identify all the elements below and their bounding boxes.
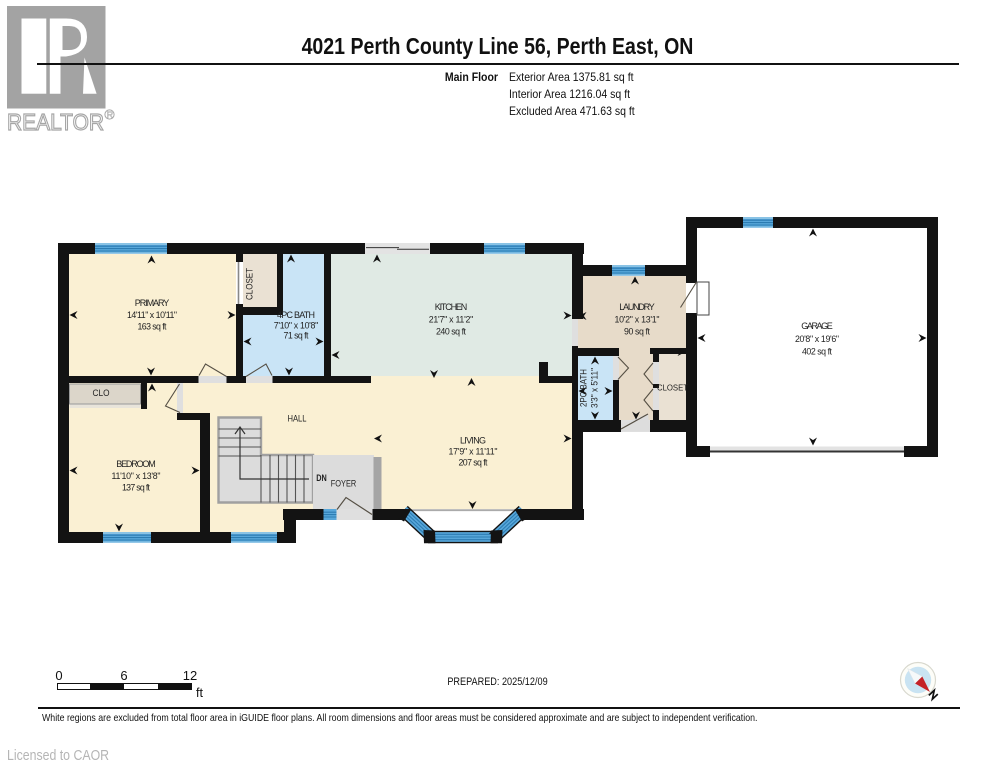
svg-text:17'9" x 11'11": 17'9" x 11'11" xyxy=(449,447,498,457)
svg-text:402 sq ft: 402 sq ft xyxy=(802,347,833,357)
svg-text:4PC BATH: 4PC BATH xyxy=(277,310,315,320)
svg-text:DN: DN xyxy=(316,473,327,483)
svg-text:11'10" x 13'8": 11'10" x 13'8" xyxy=(112,471,161,481)
svg-text:90 sq ft: 90 sq ft xyxy=(624,327,651,337)
svg-text:FOYER: FOYER xyxy=(331,479,357,489)
svg-text:71 sq ft: 71 sq ft xyxy=(284,331,310,341)
svg-text:207 sq ft: 207 sq ft xyxy=(459,458,489,468)
svg-text:GARAGE: GARAGE xyxy=(801,321,833,331)
svg-text:LAUNDRY: LAUNDRY xyxy=(619,302,655,312)
svg-text:CLOSET: CLOSET xyxy=(245,268,255,300)
svg-text:3'3" x 5'11": 3'3" x 5'11" xyxy=(590,368,600,408)
svg-text:137 sq ft: 137 sq ft xyxy=(122,483,151,493)
svg-text:KITCHEN: KITCHEN xyxy=(435,302,468,312)
svg-text:240 sq ft: 240 sq ft xyxy=(436,327,467,337)
svg-text:2PC BATH: 2PC BATH xyxy=(579,369,589,407)
svg-text:CLO: CLO xyxy=(93,388,110,398)
svg-text:14'11" x 10'11": 14'11" x 10'11" xyxy=(127,310,177,320)
svg-text:7'10" x 10'8": 7'10" x 10'8" xyxy=(274,321,319,331)
svg-text:HALL: HALL xyxy=(288,414,307,424)
svg-text:10'2" x 13'1": 10'2" x 13'1" xyxy=(615,315,660,325)
svg-text:20'8" x 19'6": 20'8" x 19'6" xyxy=(795,334,839,344)
svg-text:LIVING: LIVING xyxy=(460,436,486,446)
svg-text:BEDROOM: BEDROOM xyxy=(116,459,156,469)
svg-text:PRIMARY: PRIMARY xyxy=(135,298,170,308)
svg-text:163 sq ft: 163 sq ft xyxy=(138,322,168,332)
svg-text:CLOSET: CLOSET xyxy=(657,384,688,393)
svg-text:21'7" x 11'2": 21'7" x 11'2" xyxy=(429,315,474,325)
